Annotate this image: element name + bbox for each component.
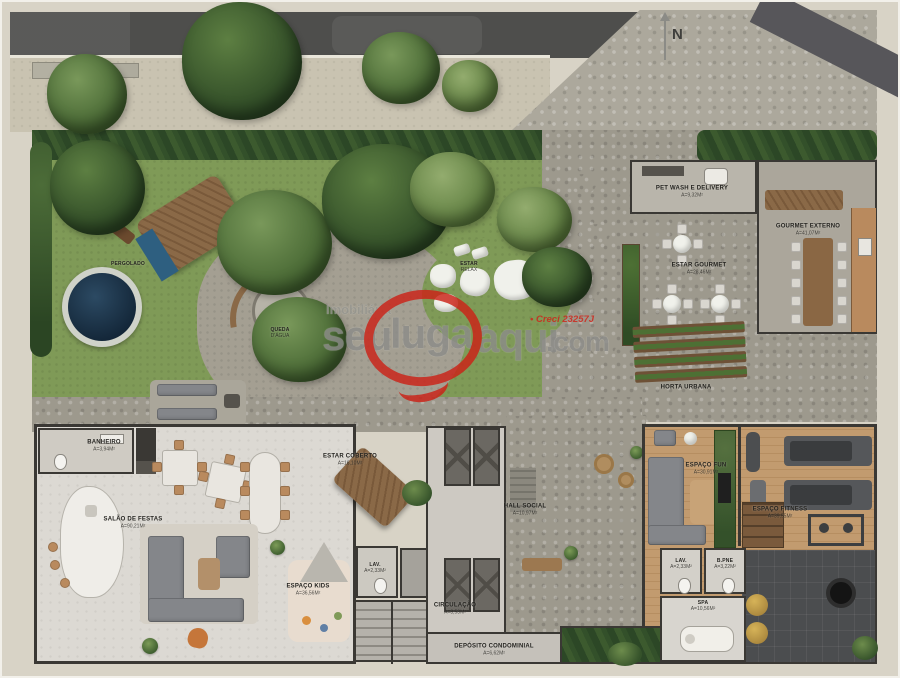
hall-social-floor <box>506 416 646 634</box>
coffee-table <box>198 558 220 590</box>
relax-pouf <box>434 294 458 312</box>
patio-table-set <box>652 284 692 324</box>
north-arrow-line <box>664 20 666 60</box>
tree <box>410 152 495 227</box>
stair-rail <box>391 602 393 664</box>
chair <box>791 296 801 306</box>
wicker-pouf <box>618 472 634 488</box>
toy <box>320 624 328 632</box>
shrub <box>608 642 642 666</box>
sink-icon <box>858 238 872 256</box>
chair <box>677 224 687 234</box>
tree <box>182 2 302 120</box>
chaise <box>216 536 250 578</box>
pne-bathroom-room <box>704 548 746 594</box>
chair <box>174 440 184 450</box>
treadmill <box>784 436 872 466</box>
chair <box>198 470 210 482</box>
gourmet-room <box>757 160 877 334</box>
label-espaco-fitness: ESPAÇO FITNESS A=39,55m² <box>753 506 808 519</box>
label-lavabo-1: LAV. A=2,33m² <box>364 562 386 574</box>
table-top <box>162 450 198 486</box>
stepping-stone <box>584 224 610 244</box>
chair <box>240 510 250 520</box>
label-banheiro: BANHEIRO A=3,94m² <box>87 439 121 452</box>
potted-plant <box>142 638 158 654</box>
pet-bath-tub <box>704 168 728 185</box>
oval-dining-table <box>240 448 288 536</box>
round-table <box>673 235 691 253</box>
pool-water <box>68 273 136 341</box>
toy <box>302 616 311 625</box>
potted-plant <box>564 546 578 560</box>
chair <box>240 486 250 496</box>
bar-stool <box>60 578 70 588</box>
label-queda-dagua: QUEDA D'ÁGUA <box>270 327 289 339</box>
planter-row <box>635 366 747 383</box>
delivery-lockers <box>642 166 684 176</box>
shrub <box>402 480 432 506</box>
gold-stool <box>746 622 768 644</box>
chair <box>683 299 693 309</box>
bar-stool <box>50 560 60 570</box>
headrest <box>685 634 695 644</box>
label-gourmet-externo: GOURMET EXTERNO A=41,07m² <box>776 223 840 236</box>
toilet-icon <box>678 578 691 594</box>
potted-plant <box>270 540 285 555</box>
tv-screen <box>718 473 731 503</box>
chair <box>715 284 725 294</box>
label-estar-relax: ESTAR RELAX <box>460 261 478 273</box>
side-table <box>684 432 697 445</box>
tree <box>522 247 592 307</box>
black-basin <box>826 578 856 608</box>
green-roof-strip <box>697 130 877 162</box>
patio-table-set <box>700 284 740 324</box>
island-sink <box>85 505 97 517</box>
relax-pouf <box>430 264 456 288</box>
toy <box>334 612 342 620</box>
sectional-sofa <box>148 598 244 622</box>
chair <box>224 454 236 466</box>
label-banheiro-pne: B.PNE A=3,22m² <box>714 558 736 570</box>
cable-machine <box>808 514 864 546</box>
chair <box>667 284 677 294</box>
treadmill-belt <box>790 485 852 505</box>
fun-armchair <box>654 430 676 446</box>
massage-bed <box>680 626 734 652</box>
stepping-stone <box>570 174 596 194</box>
staircase <box>354 600 428 662</box>
chair <box>837 242 847 252</box>
chair <box>240 462 250 472</box>
chair <box>700 299 710 309</box>
round-table <box>711 295 729 313</box>
chair <box>214 498 226 510</box>
label-espaco-fun: ESPAÇO FUN A=30,91m² <box>686 462 727 475</box>
table-top <box>249 452 281 534</box>
bar-stool <box>48 542 58 552</box>
tree <box>442 60 498 112</box>
label-espaco-kids: ESPAÇO KIDS A=36,56m² <box>286 583 329 596</box>
elevator-shaft <box>473 558 500 612</box>
chair <box>837 296 847 306</box>
label-estar-coberto: ESTAR COBERTO A=16,10m² <box>323 453 377 466</box>
tree <box>47 54 127 134</box>
round-table <box>663 295 681 313</box>
tree <box>497 187 572 252</box>
label-pergolado: PERGOLADO <box>111 261 145 267</box>
treadmill-belt <box>790 441 852 461</box>
chair <box>652 299 662 309</box>
planter-row <box>633 336 745 353</box>
label-circulacao: CIRCULAÇÃO A=8,53m² <box>434 602 476 615</box>
label-salao-festas: SALÃO DE FESTAS A=90,21m² <box>104 516 163 529</box>
left-border-shrubs <box>30 142 52 357</box>
chair <box>837 278 847 288</box>
chair <box>662 239 672 249</box>
chair <box>731 299 741 309</box>
elevator-shaft <box>444 428 471 486</box>
chair <box>280 462 290 472</box>
hall-bench <box>522 558 562 571</box>
round-pool <box>62 267 142 347</box>
label-horta-urbana: HORTA URBANA <box>661 384 712 391</box>
chair <box>791 242 801 252</box>
pulley <box>843 523 853 533</box>
north-arrow: N <box>657 12 697 60</box>
stepping-stone <box>590 336 616 356</box>
planter-row <box>634 351 746 368</box>
chair <box>693 239 703 249</box>
outdoor-coffee-table <box>224 394 240 408</box>
kitchen-counter <box>851 208 876 332</box>
tree <box>362 32 440 104</box>
label-estar-gourmet: ESTAR GOURMET A=28,46m² <box>672 262 727 275</box>
toilet-icon <box>722 578 735 594</box>
chair <box>280 510 290 520</box>
toilet-icon <box>54 454 67 470</box>
chair <box>791 314 801 324</box>
outdoor-sofa <box>157 384 217 396</box>
tree <box>252 297 347 382</box>
tree <box>217 190 332 295</box>
wicker-pouf <box>594 454 614 474</box>
fun-sofa-horizontal <box>648 525 706 545</box>
north-label: N <box>672 26 683 43</box>
chair <box>837 314 847 324</box>
bar-counter <box>765 190 843 210</box>
urban-garden-planters <box>632 321 747 389</box>
label-hall-social: HALL SOCIAL A=10,97m² <box>504 503 546 516</box>
chair <box>152 462 162 472</box>
floor-plan-canvas: N <box>0 0 900 678</box>
label-lavabo-2: LAV. A=2,33m² <box>670 558 692 570</box>
lavabo-room-2 <box>660 548 702 594</box>
patio-table-set <box>662 224 702 264</box>
shrub <box>852 636 878 660</box>
chair <box>837 260 847 270</box>
tv-green-panel <box>714 430 736 548</box>
teepee-tent <box>300 542 348 582</box>
chair <box>791 260 801 270</box>
label-spa: SPA A=10,56m² <box>691 600 716 612</box>
toilet-icon <box>374 578 387 594</box>
label-deposito: DEPÓSITO CONDOMINIAL A=6,62m² <box>454 643 534 656</box>
fun-fitness-wall <box>738 426 741 546</box>
elevator-shaft <box>473 428 500 486</box>
chair <box>667 315 677 325</box>
tree <box>50 140 145 235</box>
label-pet-wash: PET WASH E DELIVERY A=9,32m² <box>656 185 728 198</box>
pulley <box>819 523 829 533</box>
outdoor-sofa <box>157 408 217 420</box>
chair <box>174 485 184 495</box>
long-dining-table <box>803 238 833 326</box>
chair <box>280 486 290 496</box>
stair-landing <box>400 548 428 598</box>
gold-stool <box>746 594 768 616</box>
chair <box>791 278 801 288</box>
elliptical-machine <box>746 432 760 472</box>
